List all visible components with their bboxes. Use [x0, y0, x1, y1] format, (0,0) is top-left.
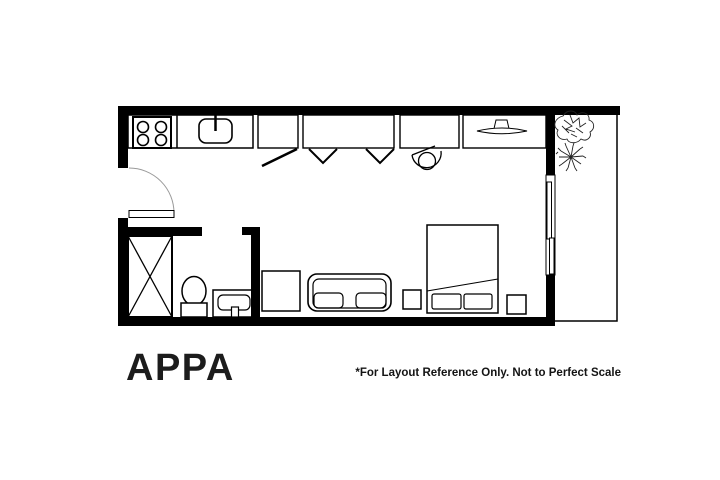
- door-leaf: [129, 211, 174, 218]
- double-bed-icon: [427, 225, 498, 313]
- entry-door: [129, 168, 174, 218]
- sofa-cushion-left: [314, 293, 343, 308]
- bifold-chevron-right: [366, 149, 394, 163]
- hinged-door-closet: [258, 115, 298, 166]
- sliding-glass-door: [546, 175, 555, 275]
- vanity-sink-icon: [213, 290, 253, 317]
- door-swing-arc: [129, 168, 174, 213]
- scale-disclaimer: *For Layout Reference Only. Not to Perfe…: [355, 367, 621, 379]
- floor-plan-page: APPA *For Layout Reference Only. Not to …: [0, 0, 720, 480]
- vanity-tap: [232, 307, 239, 317]
- pivot-door-closet: [400, 115, 459, 170]
- bed-sheet-fold: [427, 279, 498, 291]
- left-nightstand: [403, 290, 421, 309]
- sofa-cushion-right: [356, 293, 386, 308]
- right-nightstand: [507, 295, 526, 314]
- floor-plan-drawing: [0, 0, 720, 480]
- closet-door-leaf: [262, 149, 297, 166]
- sofa-icon: [308, 274, 391, 311]
- shower-icon: [128, 236, 172, 317]
- armchair-square: [262, 271, 300, 311]
- wall-tv-icon: [477, 120, 527, 134]
- bifold-door-closet: [303, 115, 394, 163]
- pillow-right: [464, 294, 492, 309]
- bifold-chevron-left: [309, 149, 337, 163]
- balcony: [555, 115, 617, 321]
- leafy-plant-icon: [555, 111, 594, 143]
- toilet-icon: [181, 277, 207, 318]
- kitchen-sink-icon: [199, 114, 232, 143]
- pillow-left: [432, 294, 461, 309]
- spiky-plant-icon: [556, 143, 586, 171]
- plan-title: APPA: [126, 347, 235, 390]
- stove-icon: [133, 117, 171, 148]
